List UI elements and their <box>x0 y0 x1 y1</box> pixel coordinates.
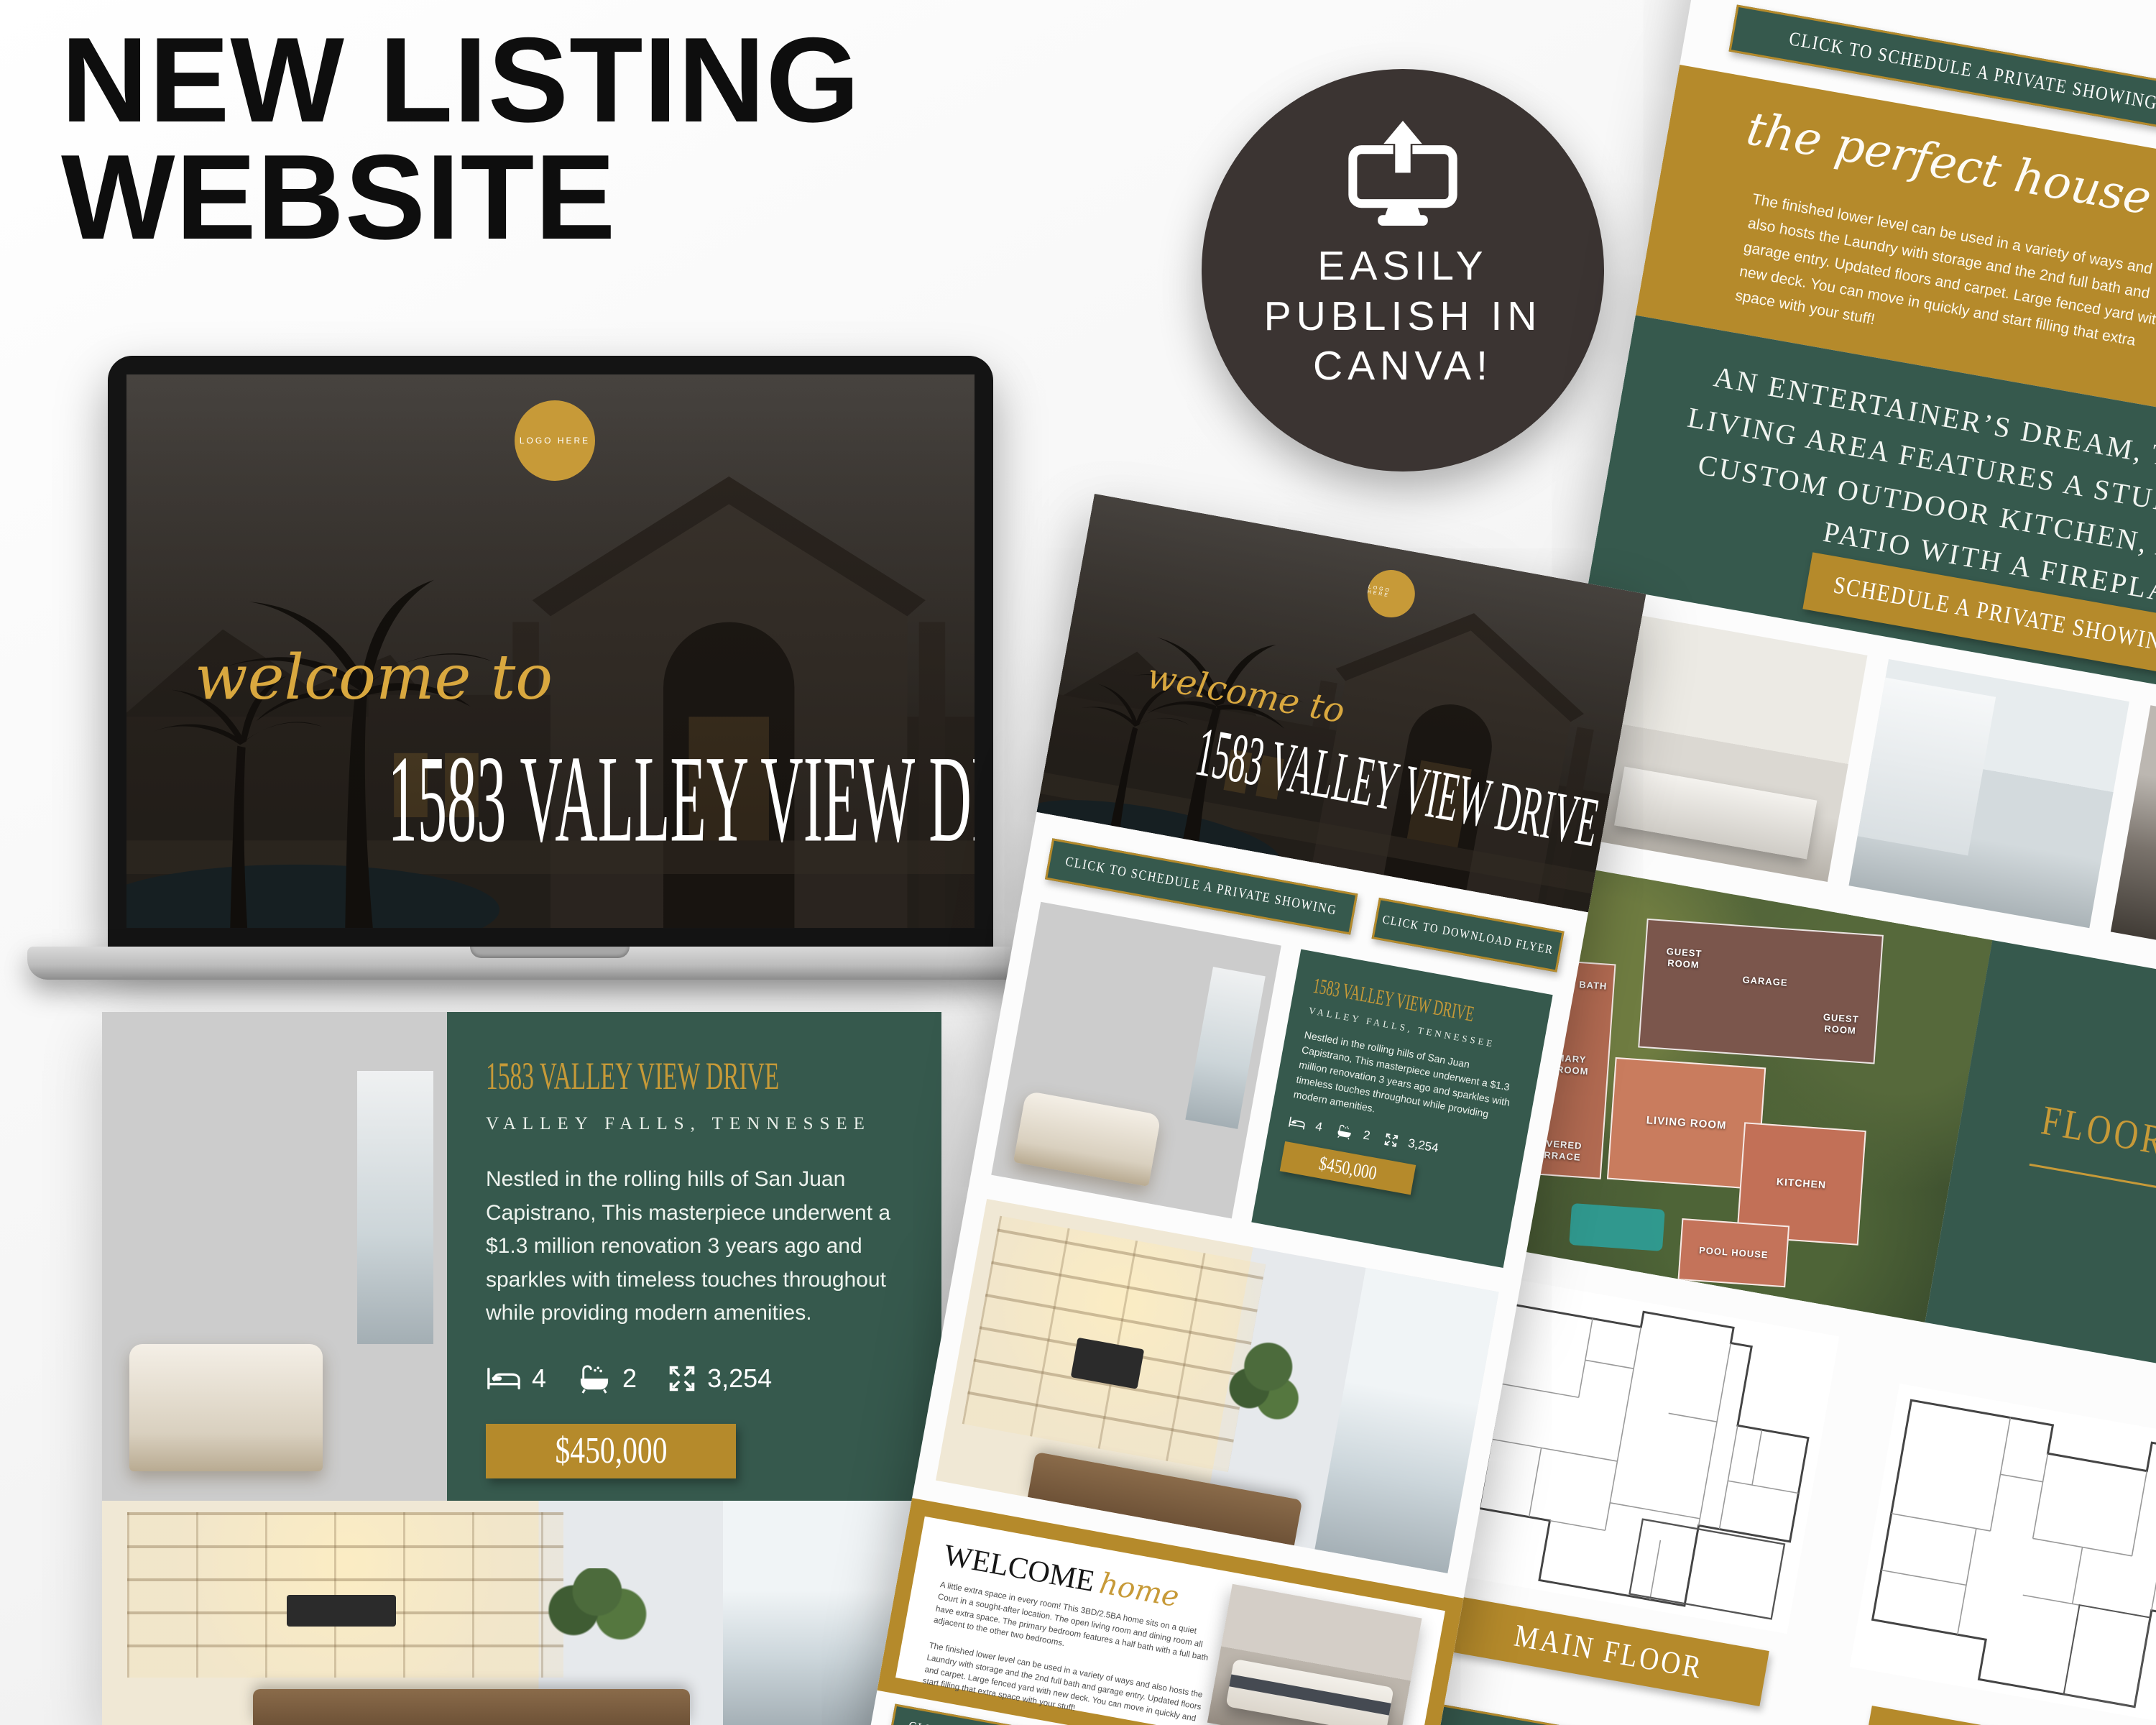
plant-decor <box>1220 1332 1309 1440</box>
mid-hero-section: LOGO HERE welcome to 1583 VALLEY VIEW DR… <box>1037 494 1646 912</box>
laptop-base <box>27 947 1072 980</box>
laptop-notch <box>470 947 630 958</box>
roof-label: POOL HOUSE <box>1699 1245 1769 1261</box>
expand-icon <box>667 1363 697 1394</box>
schedule-showing-button[interactable]: CLICK TO SCHEDULE A PRIVATE SHOWING <box>1429 1703 1919 1725</box>
page-title: NEW LISTING WEBSITE <box>61 22 860 256</box>
price-button[interactable]: $450,000 <box>1280 1141 1416 1195</box>
beds-feature: 4 <box>486 1363 546 1394</box>
kitchen-photo-2 <box>1848 659 2129 928</box>
property-address: 1583 VALLEY VIEW DRIVE <box>486 1054 903 1098</box>
area-value: 3,254 <box>1407 1136 1439 1156</box>
logo-text: LOGO HERE <box>1367 584 1415 603</box>
property-info-panel: 1583 VALLEY VIEW DRIVE VALLEY FALLS, TEN… <box>447 1012 941 1501</box>
roof-label: GUEST ROOM <box>1652 945 1715 972</box>
welcome-heading-script: home <box>1097 1567 1181 1614</box>
roof-label: LIVING ROOM <box>1646 1114 1727 1133</box>
publish-monitor-icon <box>1342 121 1464 229</box>
floorplan-underline <box>2030 1164 2156 1207</box>
expand-icon <box>1383 1132 1399 1149</box>
bedroom-photo <box>1207 1584 1422 1725</box>
logo-text: LOGO HERE <box>520 436 590 446</box>
beds-count: 4 <box>1314 1119 1324 1134</box>
living-room-photo <box>102 1012 447 1501</box>
hero-section: LOGO HERE welcome to 1583 VALLEY VIEW DR… <box>126 374 975 928</box>
dining-room-photo <box>102 1501 941 1725</box>
living-room-photo <box>991 902 1281 1219</box>
property-location: VALLEY FALLS, TENNESSEE <box>486 1114 903 1134</box>
area-feature: 3,254 <box>1383 1132 1439 1156</box>
tv-decor <box>287 1595 396 1627</box>
table-decor <box>253 1689 689 1725</box>
floorplan-heading-wrap: FLOORPLAN <box>1955 1082 2156 1220</box>
price-button[interactable]: $450,000 <box>486 1424 736 1478</box>
property-features: 4 2 3,254 <box>486 1363 903 1394</box>
roof-outline-upper: GUEST ROOM GARAGE GUEST ROOM <box>1638 919 1884 1064</box>
baths-count: 2 <box>1362 1128 1371 1143</box>
hero-script-text: welcome to <box>195 642 553 714</box>
baths-feature: 2 <box>1335 1123 1371 1144</box>
bed-icon <box>1287 1115 1307 1132</box>
bed-icon <box>486 1363 522 1394</box>
title-line-1: NEW LISTING <box>61 22 860 139</box>
roof-label: GARAGE <box>1729 973 1802 990</box>
area-feature: 3,254 <box>667 1363 772 1394</box>
download-flyer-button[interactable]: CLICK TO DOWNLOAD FLYER <box>1372 898 1565 972</box>
basement-plan <box>1850 1384 2156 1725</box>
beds-count: 4 <box>532 1363 546 1394</box>
beds-feature: 4 <box>1287 1115 1323 1135</box>
title-line-2: WEBSITE <box>61 139 860 256</box>
canva-badge: EASILY PUBLISH IN CANVA! <box>1202 69 1604 471</box>
roof-label: GUEST ROOM <box>1809 1011 1872 1038</box>
badge-line-2: PUBLISH IN <box>1264 292 1542 342</box>
logo-placeholder[interactable]: LOGO HERE <box>515 400 595 481</box>
laptop-screen: LOGO HERE welcome to 1583 VALLEY VIEW DR… <box>108 356 993 947</box>
plant-decor <box>538 1568 656 1644</box>
listing-detail-section: 1583 VALLEY VIEW DRIVE VALLEY FALLS, TEN… <box>102 1012 941 1725</box>
bath-icon <box>1335 1123 1355 1141</box>
baths-feature: 2 <box>576 1363 637 1394</box>
badge-line-3: CANVA! <box>1264 341 1542 392</box>
baths-count: 2 <box>622 1363 637 1394</box>
bath-icon <box>576 1363 612 1394</box>
hero-address: 1583 VALLEY VIEW DRIVE <box>126 740 975 857</box>
marketing-graphic: NEW LISTING WEBSITE EASILY PUBLISH IN CA… <box>0 0 2156 1725</box>
roof-label: KITCHEN <box>1776 1176 1826 1192</box>
property-description: Nestled in the rolling hills of San Juan… <box>486 1163 903 1330</box>
property-info-card: 1583 VALLEY VIEW DRIVE VALLEY FALLS, TEN… <box>1251 949 1552 1268</box>
tv-decor <box>1071 1338 1145 1389</box>
area-value: 3,254 <box>707 1363 772 1394</box>
roof-outline-poolhouse: POOL HOUSE <box>1677 1218 1789 1287</box>
badge-text: EASILY PUBLISH IN CANVA! <box>1264 241 1542 392</box>
badge-line-1: EASILY <box>1264 241 1542 292</box>
pool-decor <box>1569 1203 1665 1251</box>
